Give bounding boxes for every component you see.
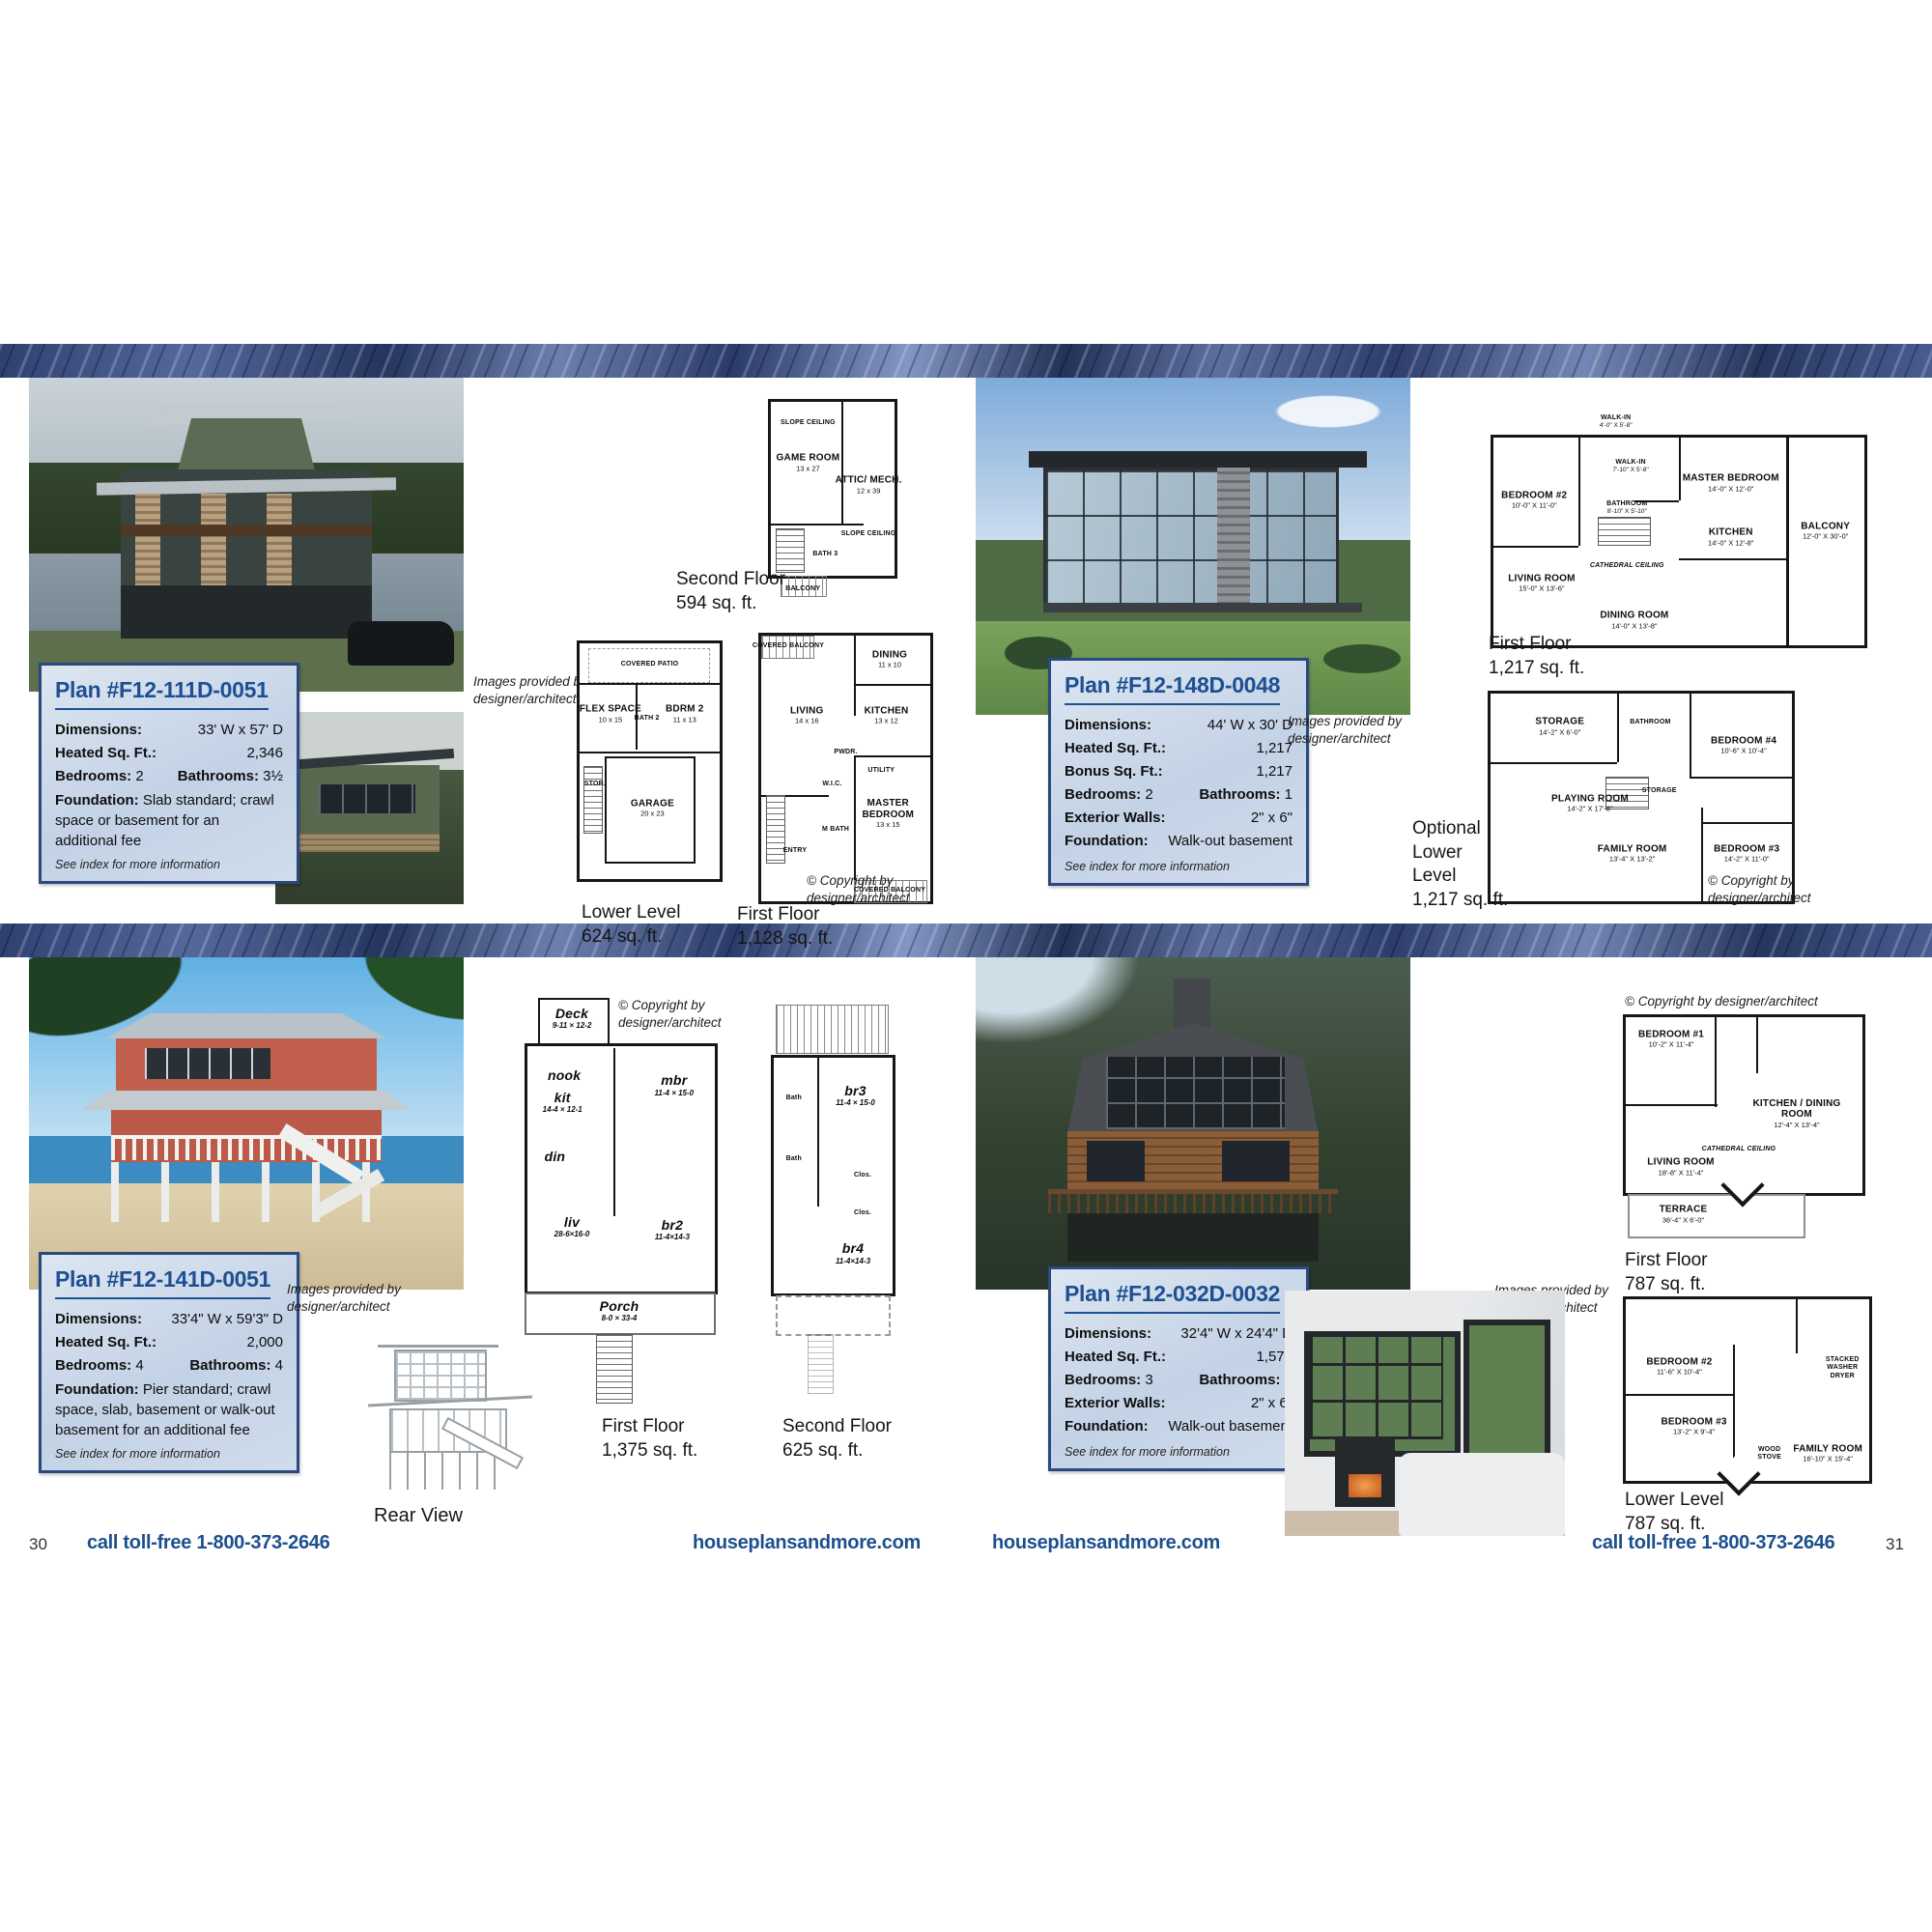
plan1-number-title: Plan #F12-111D-0051: [55, 677, 269, 710]
room-label: BATHROOM: [1630, 719, 1670, 726]
wall: [580, 752, 720, 753]
floor-name: First Floor: [737, 903, 833, 927]
floor-sqft: 624 sq. ft.: [582, 925, 680, 950]
copyright-line: designer/architect: [1708, 890, 1833, 907]
windows: [319, 784, 415, 813]
plan1-lower-level-caption: Lower Level 624 sq. ft.: [582, 901, 680, 949]
terrace-outline: [1628, 1194, 1805, 1238]
window: [1222, 1141, 1290, 1181]
catalog-spread: Plan #F12-111D-0051 Dimensions: 33' W x …: [0, 0, 1932, 1932]
plan2-image-credit: Images provided by designer/architect: [1288, 713, 1423, 748]
plan1-second-floor-caption: Second Floor 594 sq. ft.: [676, 568, 785, 615]
bedrooms: Bedrooms: 4: [55, 1354, 144, 1378]
field-label: Heated Sq. Ft.:: [1065, 737, 1166, 760]
room-label: FAMILY ROOM16'-10" X 15'-4": [1793, 1443, 1862, 1463]
plan2-first-floor-plan: WALK-IN4'-0" X 5'-8" BEDROOM #210'-0" X …: [1491, 435, 1867, 648]
room-label: STORAGE: [1642, 787, 1677, 795]
room-label: BEDROOM #211'-6" X 10'-4": [1646, 1356, 1712, 1377]
bathrooms: Bathrooms: 2: [1199, 1369, 1293, 1392]
room-label: FLEX SPACE10 x 15: [580, 704, 641, 724]
field-value: 44' W x 30' D: [1207, 714, 1293, 737]
plan4-dimensions-row: Dimensions: 32'4" W x 24'4" D: [1065, 1322, 1293, 1346]
plan2-copyright: © Copyright by designer/architect: [1708, 872, 1833, 907]
wall: [1796, 1299, 1798, 1353]
steps-outline: [808, 1334, 834, 1394]
plan3-info-box: Plan #F12-141D-0051 Dimensions: 33'4" W …: [39, 1252, 299, 1473]
white-sofa: [1399, 1453, 1565, 1536]
field-label: Foundation:: [1065, 1415, 1149, 1438]
field-value: 3½: [263, 768, 283, 784]
plan1-dimensions-row: Dimensions: 33' W x 57' D: [55, 719, 283, 742]
room-label: M BATH: [822, 826, 849, 834]
room-label: br311-4 × 15-0: [836, 1083, 875, 1108]
porch-roof: [82, 1091, 411, 1110]
plan3-second-floor-caption: Second Floor 625 sq. ft.: [782, 1415, 892, 1463]
band-streaks: [0, 344, 1932, 378]
field-label: Dimensions:: [1065, 714, 1151, 737]
walkout-base: [1067, 1213, 1319, 1262]
floor-sqft: 787 sq. ft.: [1625, 1273, 1708, 1297]
room-label: LIVING ROOM15'-0" X 13'-6": [1508, 573, 1575, 593]
room-label: BEDROOM #110'-2" X 11'-4": [1638, 1029, 1704, 1049]
room-label: KITCHEN / DINING ROOM12'-4" X 13'-4": [1752, 1097, 1841, 1128]
plan3-dimensions-row: Dimensions: 33'4" W x 59'3" D: [55, 1308, 283, 1331]
wall: [1626, 1104, 1718, 1106]
field-label: Foundation:: [1065, 830, 1149, 853]
field-label: Exterior Walls:: [1065, 807, 1165, 830]
photo-plan4-interior: [1285, 1291, 1565, 1536]
field-label: Foundation:: [55, 1381, 139, 1398]
wall: [1617, 694, 1619, 762]
field-label: Dimensions:: [55, 1308, 142, 1331]
main-walls: [771, 1055, 895, 1296]
glass-wall: [1043, 468, 1339, 609]
band-streaks: [0, 923, 1932, 957]
plan4-copyright: © Copyright by designer/architect: [1625, 993, 1818, 1010]
field-value: 2" x 6": [1251, 807, 1293, 830]
floor-sqft: 1,217 sq. ft.: [1412, 889, 1509, 913]
plan2-heated-row: Heated Sq. Ft.: 1,217: [1065, 737, 1293, 760]
photo-plan4-cabin: [976, 957, 1410, 1290]
room-label: kit14-4 × 12-1: [543, 1090, 582, 1115]
field-value: 1,217: [1256, 760, 1293, 783]
lower-level-shadow: [121, 585, 372, 639]
field-label: Dimensions:: [55, 719, 142, 742]
plan4-lower-level-plan: BEDROOM #211'-6" X 10'-4" BEDROOM #313'-…: [1623, 1296, 1872, 1484]
room-label: BEDROOM #313'-2" X 9'-4": [1661, 1416, 1726, 1436]
plan1-info-box: Plan #F12-111D-0051 Dimensions: 33' W x …: [39, 663, 299, 884]
plan2-bonus-row: Bonus Sq. Ft.: 1,217: [1065, 760, 1293, 783]
wall: [1679, 558, 1786, 560]
plan3-heated-row: Heated Sq. Ft.: 2,000: [55, 1331, 283, 1354]
room-label: TERRACE36'-4" X 6'-0": [1660, 1205, 1708, 1225]
cloud: [1265, 392, 1391, 431]
plan3-first-floor-plan: Deck9-11 × 12-2 nook kit14-4 × 12-1 mbr1…: [525, 998, 714, 1334]
room-label: LIVING14 x 16: [790, 705, 824, 725]
room-label: Clos.: [854, 1172, 871, 1179]
deck-band: [121, 525, 372, 536]
floor-sqft: 594 sq. ft.: [676, 592, 785, 616]
room-label: GAME ROOM13 x 27: [777, 453, 840, 473]
wall: [1786, 438, 1789, 645]
room-label: Bath: [786, 1094, 802, 1102]
plan2-number-title: Plan #F12-148D-0048: [1065, 672, 1280, 705]
room-label: MASTER BEDROOM14'-0" X 12'-0": [1683, 473, 1779, 494]
floor-name: Lower Level: [1625, 1489, 1723, 1513]
wall: [1690, 694, 1691, 777]
left-page-number: 30: [29, 1535, 47, 1554]
plan3-foundation-row: Foundation: Pier standard; crawl space, …: [55, 1379, 283, 1440]
floor-name: First Floor: [1625, 1249, 1708, 1273]
plan2-exterior-walls-row: Exterior Walls: 2" x 6": [1065, 807, 1293, 830]
plan2-bed-bath-row: Bedrooms: 2 Bathrooms: 1: [1065, 783, 1293, 807]
plan4-index-note: See index for more information: [1065, 1445, 1293, 1459]
plan1-bed-bath-row: Bedrooms: 2 Bathrooms: 3½: [55, 765, 283, 788]
photo-plan3-beach-house: [29, 957, 464, 1290]
room-label: BEDROOM #410'-6" X 10'-4": [1711, 735, 1776, 755]
plan2-lower-level-caption: Optional Lower Level 1,217 sq. ft.: [1412, 817, 1509, 913]
room-label: WALK-IN4'-0" X 5'-8": [1600, 414, 1633, 430]
field-value: Walk-out basement: [1168, 830, 1293, 853]
field-value: 32'4" W x 24'4" D: [1180, 1322, 1293, 1346]
field-label: Dimensions:: [1065, 1322, 1151, 1346]
room-label: BEDROOM #314'-2" X 11'-0": [1714, 843, 1779, 864]
plan2-info-box: Plan #F12-148D-0048 Dimensions: 44' W x …: [1048, 658, 1309, 886]
upper-roofline: [378, 1345, 498, 1348]
room-label: br211-4×14-3: [655, 1217, 690, 1242]
decorative-roof-band-top: [0, 344, 1932, 378]
wall: [1493, 546, 1578, 548]
room-label: GARAGE20 x 23: [631, 798, 674, 818]
floor-name: First Floor: [1489, 633, 1584, 657]
wall: [580, 683, 720, 685]
window-mullions: [1046, 470, 1336, 606]
room-label: STACKED WASHER DRYER: [1817, 1356, 1867, 1379]
plan2-first-floor-caption: First Floor 1,217 sq. ft.: [1489, 633, 1584, 680]
field-label: Bathrooms:: [178, 768, 259, 784]
wall: [841, 402, 843, 524]
floor-sqft: 1,128 sq. ft.: [737, 927, 833, 952]
room-label: W.I.C.: [822, 781, 841, 788]
upper-story-windows: [394, 1350, 487, 1402]
room-label: Porch8-0 × 33-4: [600, 1298, 639, 1323]
wall: [1491, 762, 1617, 764]
shrub: [1323, 644, 1401, 673]
room-label: BALCONY12'-0" X 30'-0": [1801, 521, 1850, 541]
upper-windows: [145, 1048, 270, 1079]
right-phone-text: call toll-free 1-800-373-2646: [1592, 1532, 1834, 1554]
room-label: BALCONY: [785, 585, 820, 593]
floor-sqft: 625 sq. ft.: [782, 1439, 892, 1463]
room-label: UTILITY: [867, 767, 895, 775]
plan2-foundation-row: Foundation: Walk-out basement: [1065, 830, 1293, 853]
field-value: 2,346: [246, 742, 283, 765]
room-label: BDRM 211 x 13: [666, 704, 704, 724]
plan4-number-title: Plan #F12-032D-0032: [1065, 1281, 1280, 1314]
wall: [1701, 822, 1792, 824]
floor-name: Optional Lower Level: [1412, 817, 1509, 889]
car: [348, 621, 454, 666]
bedrooms: Bedrooms: 2: [1065, 783, 1153, 807]
room-label: Clos.: [854, 1209, 871, 1217]
room-label: CATHEDRAL CEILING: [1702, 1146, 1776, 1153]
wall: [1626, 1394, 1733, 1396]
plan4-bed-bath-row: Bedrooms: 3 Bathrooms: 2: [1065, 1369, 1293, 1392]
plan1-index-note: See index for more information: [55, 858, 283, 871]
wall: [854, 684, 930, 686]
plan2-index-note: See index for more information: [1065, 860, 1293, 873]
plan1-lower-level-plan: COVERED PATIO FLEX SPACE10 x 15 BATH 2 B…: [577, 640, 723, 882]
room-label: BATHROOM8'-10" X 5'-10": [1606, 500, 1647, 516]
deck-railing: [776, 1005, 889, 1054]
room-label: COVERED BALCONY: [753, 642, 824, 650]
floor-name: Lower Level: [582, 901, 680, 925]
bathrooms: Bathrooms: 4: [189, 1354, 283, 1378]
field-value: 2: [135, 768, 143, 784]
room-label: COVERED PATIO: [621, 661, 679, 668]
room-label: mbr11-4 × 15-0: [655, 1072, 695, 1097]
field-label: Heated Sq. Ft.:: [55, 742, 156, 765]
deck-edge: [1043, 603, 1362, 612]
plan4-exterior-walls-row: Exterior Walls: 2" x 6": [1065, 1392, 1293, 1415]
stairs: [776, 528, 805, 572]
copyright-line: © Copyright by: [1708, 872, 1833, 890]
field-label: Bonus Sq. Ft.:: [1065, 760, 1163, 783]
wall: [1679, 438, 1681, 500]
deck-balusters: [1048, 1194, 1338, 1213]
room-label: PWDR.: [834, 749, 857, 756]
fire-glow: [1349, 1474, 1381, 1497]
room-label: SLOPE CEILING: [841, 530, 896, 538]
wall: [1578, 438, 1580, 546]
room-label: PLAYING ROOM14'-2" X 17'-8": [1551, 794, 1629, 814]
room-label: KITCHEN13 x 12: [865, 705, 909, 725]
stone-base: [299, 834, 440, 852]
plan4-info-box: Plan #F12-032D-0032 Dimensions: 32'4" W …: [1048, 1266, 1309, 1471]
floor-sqft: 1,217 sq. ft.: [1489, 657, 1584, 681]
plan1-first-floor-plan: COVERED BALCONY DINING11 x 10 LIVING14 x…: [758, 633, 933, 904]
flat-roof: [1029, 451, 1367, 468]
plan1-copyright: © Copyright by designer/architect: [807, 872, 923, 907]
right-page-number: 31: [1886, 1535, 1904, 1554]
plan3-first-floor-caption: First Floor 1,375 sq. ft.: [602, 1415, 697, 1463]
left-phone-text: call toll-free 1-800-373-2646: [87, 1532, 329, 1554]
plan3-image-credit: Images provided by designer/architect: [287, 1281, 432, 1316]
room-label: BATH 3: [812, 551, 838, 558]
field-label: Bedrooms:: [55, 768, 131, 784]
plan1-first-floor-caption: First Floor 1,128 sq. ft.: [737, 903, 833, 951]
room-label: liv28-6×16-0: [554, 1214, 590, 1239]
wall: [1690, 777, 1792, 779]
plan1-second-floor-plan: GAME ROOM13 x 27 ATTIC/ MECH.12 x 39 BAT…: [768, 399, 897, 579]
field-label: Exterior Walls:: [1065, 1392, 1165, 1415]
window: [1087, 1141, 1145, 1181]
left-website-text: houseplansandmore.com: [693, 1532, 921, 1554]
stilt-posts: [389, 1451, 503, 1490]
plan3-rear-view-sketch: [351, 1345, 548, 1501]
stone-column: [1217, 468, 1250, 605]
bathrooms: Bathrooms: 3½: [178, 765, 283, 788]
room-label: br411-4×14-3: [836, 1240, 870, 1265]
room-label: DINING ROOM14'-0" X 13'-8": [1600, 611, 1668, 631]
wall: [854, 636, 856, 716]
room-label: ENTRY: [783, 847, 807, 855]
room-label: Deck9-11 × 12-2: [553, 1006, 592, 1031]
plan4-first-floor-caption: First Floor 787 sq. ft.: [1625, 1249, 1708, 1296]
plan4-lower-level-caption: Lower Level 787 sq. ft.: [1625, 1489, 1723, 1536]
wall: [854, 755, 930, 757]
room-label: ATTIC/ MECH.12 x 39: [836, 475, 902, 496]
railing-top-bar: [111, 1135, 382, 1139]
window-mullions: [1310, 1337, 1443, 1439]
field-value: Walk-out basement: [1168, 1415, 1293, 1438]
plan3-second-floor-plan: br311-4 × 15-0 br411-4×14-3 Bath Bath Cl…: [771, 998, 892, 1334]
plan4-first-floor-plan: BEDROOM #110'-2" X 11'-4" KITCHEN / DINI…: [1623, 1014, 1864, 1239]
floor-name: Second Floor: [676, 568, 785, 592]
entry-steps: [596, 1334, 632, 1404]
wall: [1756, 1017, 1758, 1073]
plan3-rear-view-label: Rear View: [374, 1503, 463, 1528]
wall: [771, 524, 864, 526]
bathrooms: Bathrooms: 1: [1199, 783, 1293, 807]
room-label: KITCHEN14'-0" X 12'-8": [1708, 527, 1753, 548]
room-label: SLOPE CEILING: [781, 419, 836, 427]
field-value: 2,000: [246, 1331, 283, 1354]
right-website-text: houseplansandmore.com: [992, 1532, 1220, 1554]
roof-outline-below: [776, 1295, 891, 1336]
photo-plan1-rear-exterior: [275, 712, 464, 904]
room-label: nook: [548, 1067, 581, 1083]
photo-plan1-lake-house: [29, 378, 464, 692]
room-label: WALK-IN7'-10" X 5'-8": [1612, 459, 1648, 474]
room-label: WOOD STOVE: [1752, 1446, 1787, 1462]
field-value: 33'4" W x 59'3" D: [171, 1308, 283, 1331]
plan1-heated-row: Heated Sq. Ft.: 2,346: [55, 742, 283, 765]
plan4-heated-row: Heated Sq. Ft.: 1,574: [1065, 1346, 1293, 1369]
room-label: Bath: [786, 1155, 802, 1163]
copyright-line: © Copyright by: [807, 872, 923, 890]
room-label: STORAGE14'-2" X 6'-0": [1535, 717, 1584, 737]
field-label: Heated Sq. Ft.:: [1065, 1346, 1166, 1369]
field-label: Foundation:: [55, 792, 139, 809]
room-label: DINING11 x 10: [872, 649, 907, 669]
bedrooms: Bedrooms: 2: [55, 765, 144, 788]
plan3-bed-bath-row: Bedrooms: 4 Bathrooms: 4: [55, 1354, 283, 1378]
bedrooms: Bedrooms: 3: [1065, 1369, 1153, 1392]
room-label: BATH 2: [635, 715, 660, 723]
field-value: 33' W x 57' D: [198, 719, 283, 742]
room-label: STOR.: [584, 781, 606, 788]
decorative-roof-band-middle: [0, 923, 1932, 957]
room-label: din: [545, 1149, 566, 1164]
floor-name: Second Floor: [782, 1415, 892, 1439]
window: [1463, 1320, 1550, 1464]
plan4-foundation-row: Foundation: Walk-out basement: [1065, 1415, 1293, 1438]
stairs: [583, 766, 602, 834]
plan1-foundation-row: Foundation: Slab standard; crawl space o…: [55, 790, 283, 851]
plan2-dimensions-row: Dimensions: 44' W x 30' D: [1065, 714, 1293, 737]
room-label: LIVING ROOM18'-8" X 11'-4": [1647, 1157, 1714, 1178]
room-label: FAMILY ROOM13'-4" X 13'-2": [1598, 843, 1667, 864]
field-label: Heated Sq. Ft.:: [55, 1331, 156, 1354]
sky-light: [976, 957, 1140, 1044]
wall: [613, 1048, 615, 1216]
plan3-number-title: Plan #F12-141D-0051: [55, 1266, 270, 1299]
fireplace: [1335, 1437, 1395, 1507]
floor-sqft: 1,375 sq. ft.: [602, 1439, 697, 1463]
wall: [1715, 1017, 1717, 1107]
room-label: MASTER BEDROOM13 x 15: [854, 798, 922, 829]
room-label: BEDROOM #210'-0" X 11'-0": [1501, 490, 1567, 510]
wall: [817, 1055, 819, 1207]
floor-name: First Floor: [602, 1415, 697, 1439]
gable-windows: [1106, 1057, 1285, 1129]
stairs: [1598, 517, 1652, 546]
room-label: CATHEDRAL CEILING: [1590, 562, 1664, 570]
plan3-index-note: See index for more information: [55, 1447, 283, 1461]
